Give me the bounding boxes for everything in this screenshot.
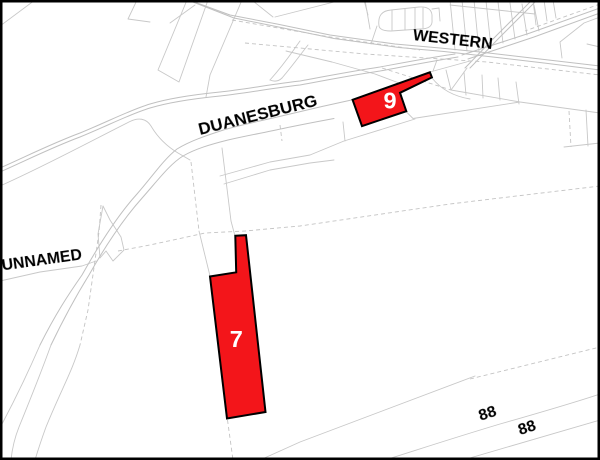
svg-text:7: 7 xyxy=(230,326,243,352)
svg-text:DUANESBURG: DUANESBURG xyxy=(196,91,319,139)
svg-text:9: 9 xyxy=(383,87,396,113)
svg-text:UNNAMED: UNNAMED xyxy=(1,246,83,274)
svg-text:88: 88 xyxy=(516,417,538,439)
svg-text:88: 88 xyxy=(477,403,499,425)
